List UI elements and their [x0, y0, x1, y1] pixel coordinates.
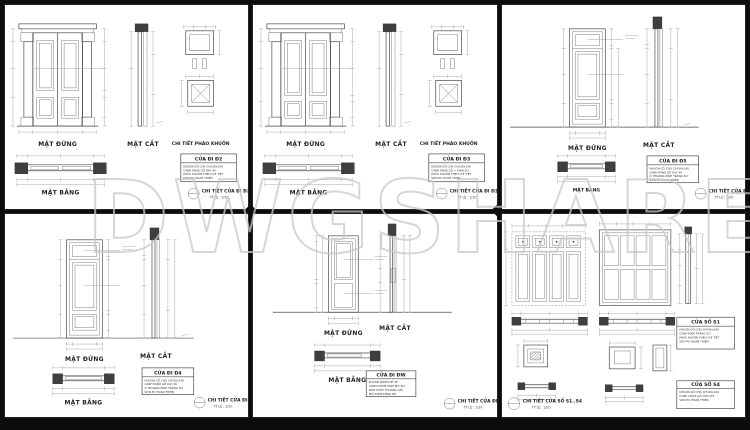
title-block: CỬA ĐI Đ2 KHUÔN GỖ CHÒ CHỈ 60x140 CÁNH P…: [181, 154, 237, 182]
detail-reference-label: CHI TIẾT CỬA SỔ S1..S4: [523, 396, 582, 404]
plan-view: MẶT BẰNG: [263, 154, 354, 197]
plan-view: MẶT BẰNG: [557, 154, 615, 194]
sheet-windows-s1-s4: CỬA SỔ S1 KHUÔN GỖ CHÒ CHỈ 60x140 CÁNH K…: [501, 213, 746, 419]
sheet-windows-drawing: CỬA SỔ S1 KHUÔN GỖ CHÒ CHỈ 60x140 CÁNH K…: [502, 214, 745, 418]
section-label: MẶT CẮT: [127, 140, 159, 148]
frame-detail-jamb: [653, 345, 673, 371]
frame-detail-glass: [516, 339, 556, 402]
detail-reference: CHI TIẾT CỬA ĐI Đ2 TỶ LỆ : 1/20: [188, 187, 248, 200]
section-view: MẶT CẮT: [378, 223, 412, 331]
sheet-door-d3: MẶT ĐỨNG MẶT CẮT: [252, 4, 497, 210]
window-glass-elevation: [504, 223, 585, 304]
section-label: MẶT CẮT: [643, 141, 675, 149]
detail-reference: CHI TIẾT CỬA SỔ S1..S4 TỶ LỆ : 1/20: [508, 396, 582, 409]
title-block-s4: CỬA SỔ S4 KHUÔN GỖ CHÒ CHỈ 60x140 CÁNH C…: [676, 380, 734, 408]
sheet-door-d2: MẶT ĐỨNG MẶT CẮT: [4, 4, 249, 210]
section-label: MẶT CẮT: [376, 140, 408, 148]
detail-reference-label: CHI TIẾT CỬA ĐI Đ2: [202, 187, 249, 195]
elevation-label: MẶT ĐỨNG: [38, 141, 77, 148]
title-block: CỬA ĐI Đ4 KHUÔN GỖ CHÒ CHỈ 60x140 CÁNH P…: [142, 367, 194, 394]
detail-reference-label: CHI TIẾT CỬA ĐI Đ4: [208, 395, 249, 403]
frame-detail-louver: [605, 341, 643, 404]
drawing-sheet-canvas: MẶT ĐỨNG MẶT CẮT: [0, 0, 750, 430]
plan-label: MẶT BẰNG: [290, 189, 328, 197]
molding-detail-label: CHI TIẾT PHÀO KHUÔN: [172, 139, 230, 147]
section-label: MẶT CẮT: [379, 324, 411, 332]
detail-reference-scale: TỶ LỆ : 1/20: [213, 403, 233, 408]
title-block-s1: CỬA SỔ S1 KHUÔN GỖ CHÒ CHỈ 60x140 CÁNH K…: [676, 317, 734, 349]
detail-reference-label: CHI TIẾT CỬA ĐI ĐW: [458, 396, 497, 404]
detail-reference-scale: TỶ LỆ : 1/20: [530, 404, 550, 409]
sheet-door-d3-drawing: MẶT ĐỨNG MẶT CẮT: [253, 5, 496, 209]
plan-view: MẶT BẰNG: [15, 154, 106, 197]
plan-view: MẶT BẰNG: [53, 365, 115, 406]
detail-reference-scale: TỶ LỆ : 1/20: [209, 195, 229, 200]
elevation-label: MẶT ĐỨNG: [287, 141, 326, 148]
window-louver-elevation: [599, 221, 671, 304]
molding-detail-label: CHI TIẾT PHÀO KHUÔN: [420, 139, 478, 147]
section-label: MẶT CẮT: [140, 351, 172, 359]
detail-reference-scale: TỶ LỆ : 1/20: [457, 195, 477, 200]
detail-reference: CHI TIẾT CỬA ĐI Đ3 TỶ LỆ : 1/20: [437, 187, 497, 200]
window-section-view: [677, 226, 704, 302]
plan-label: MẶT BẰNG: [64, 398, 102, 406]
title-block-spec: SƠN PU HOÀN THIỆN: [432, 175, 461, 180]
sheet-door-dw: MẶT ĐỨNG MẶT CẮT: [252, 213, 497, 419]
title-block: CỬA ĐI ĐW KHUÔN NHÔM HỆ 38 CÁNH NHÔM KÍN…: [367, 370, 417, 396]
title-block-spec: SƠN PU HOÀN THIỆN: [145, 389, 174, 394]
detail-reference: CHI TIẾT CỬA ĐI ĐW TỶ LỆ : 1/20: [445, 396, 497, 409]
sheet-door-d4: MẶT ĐỨNG MẶT CẮT: [4, 213, 249, 419]
window-glass-plan: [512, 311, 587, 336]
title-block: CỬA ĐI Đ5 KHUÔN GỖ CHÒ CHỈ 60x140 CÁNH P…: [647, 156, 699, 183]
window-louver-plan: [599, 311, 674, 336]
detail-reference-scale: TỶ LỆ : 1/20: [713, 195, 733, 200]
sheet-door-d5-drawing: MẶT ĐỨNG MẶT CẮT: [502, 5, 745, 209]
molding-detail-view: CHI TIẾT PHÀO KHUÔN: [420, 25, 478, 147]
title-block-spec: SƠN PU HOÀN THIỆN: [679, 397, 708, 402]
sheet-door-d2-drawing: MẶT ĐỨNG MẶT CẮT: [5, 5, 248, 209]
section-view: MẶT CẮT: [376, 24, 412, 148]
elevation-view: MẶT ĐỨNG: [315, 235, 388, 336]
elevation-view: MẶT ĐỨNG: [259, 24, 354, 148]
plan-label: MẶT BẰNG: [42, 189, 80, 197]
molding-detail-view: CHI TIẾT PHÀO KHUÔN: [172, 25, 230, 147]
elevation-view: MẶT ĐỨNG: [59, 239, 136, 362]
plan-label: MẶT BẰNG: [572, 186, 600, 194]
detail-reference-label: CHI TIẾT CỬA ĐI Đ3: [450, 187, 497, 195]
elevation-label: MẶT ĐỨNG: [568, 145, 607, 152]
detail-reference: CHI TIẾT CỬA ĐI Đ4 TỶ LỆ : 1/20: [194, 395, 248, 408]
elevation-view: MẶT ĐỨNG: [11, 24, 106, 148]
section-view: MẶT CẮT: [127, 24, 163, 148]
title-block: CỬA ĐI Đ3 KHUÔN GỖ CHÒ CHỈ 60x140 CÁNH P…: [429, 154, 485, 182]
plan-label: MẶT BẰNG: [329, 375, 367, 383]
sheet-door-d5: MẶT ĐỨNG MẶT CẮT: [501, 4, 746, 210]
detail-reference-scale: TỶ LỆ : 1/20: [463, 404, 483, 409]
title-block-spec: SƠN PU HOÀN THIỆN: [649, 177, 678, 182]
elevation-label: MẶT ĐỨNG: [65, 355, 104, 362]
sheet-door-d4-drawing: MẶT ĐỨNG MẶT CẮT: [5, 214, 248, 418]
detail-reference-label: CHI TIẾT CỬA ĐI Đ5: [708, 187, 745, 195]
section-view: MẶT CẮT: [643, 17, 691, 149]
sheet-door-dw-drawing: MẶT ĐỨNG MẶT CẮT: [253, 214, 496, 418]
elevation-label: MẶT ĐỨNG: [324, 330, 363, 337]
title-block-spec: PHỤ KIỆN ĐỒNG BỘ: [369, 391, 397, 396]
title-block-spec: SƠN PU HOÀN THIỆN: [183, 175, 212, 180]
section-view: MẶT CẮT: [140, 227, 188, 359]
title-block-spec: SƠN PU HOÀN THIỆN: [679, 338, 708, 343]
detail-reference: CHI TIẾT CỬA ĐI Đ5 TỶ LỆ : 1/20: [695, 187, 745, 200]
elevation-view: MẶT ĐỨNG: [561, 29, 638, 152]
